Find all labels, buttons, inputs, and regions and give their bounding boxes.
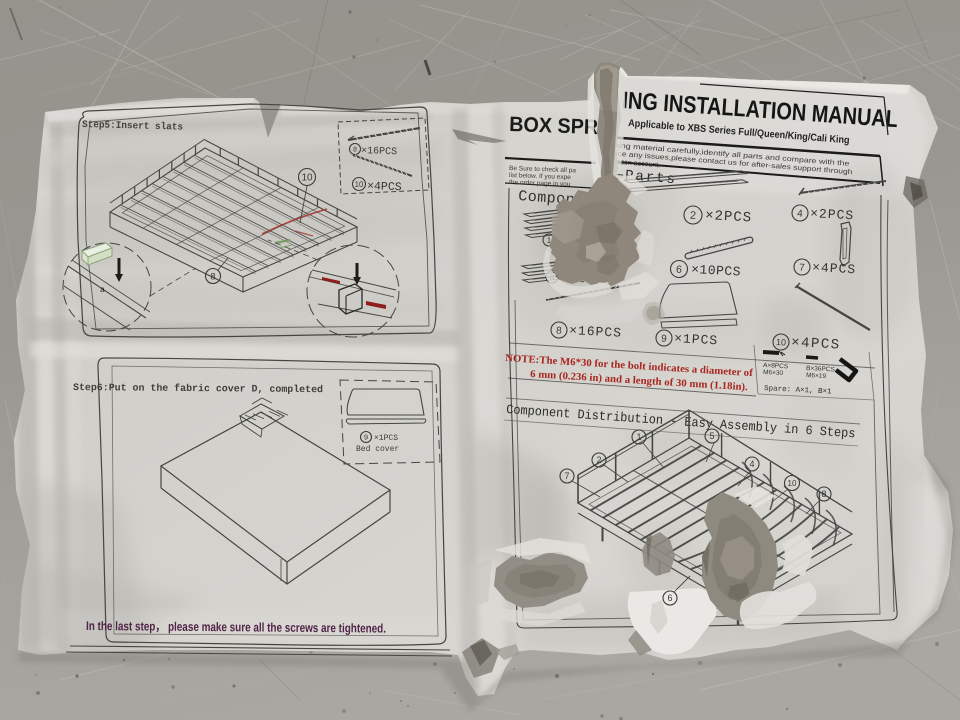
svg-text:M6×30: M6×30 [763,369,784,377]
svg-text:2: 2 [690,210,697,222]
svg-text:5: 5 [709,431,714,441]
svg-text:10: 10 [301,173,313,184]
svg-text:8: 8 [556,325,563,336]
svg-text:×16PCS: ×16PCS [361,146,397,158]
svg-text:4: 4 [797,208,804,219]
svg-text:Bed cover: Bed cover [356,445,399,454]
svg-text:×4PCS: ×4PCS [367,180,402,194]
svg-text:a: a [100,286,105,295]
svg-text:9: 9 [661,333,668,344]
svg-text:×16PCS: ×16PCS [569,323,623,341]
svg-text:6: 6 [676,264,683,276]
svg-text:×4PCS: ×4PCS [791,335,841,354]
svg-text:BOX SPR: BOX SPR [509,113,599,139]
svg-text:Step6:Put on the fabric cover: Step6:Put on the fabric cover D, complet… [73,382,323,396]
svg-text:×1PCS: ×1PCS [674,331,719,348]
svg-text:10: 10 [788,479,797,488]
svg-text:×1PCS: ×1PCS [374,434,398,443]
svg-text:×2PCS: ×2PCS [810,206,855,223]
svg-text:10: 10 [354,180,364,189]
svg-text:In the last step， please make: In the last step， please make sure all t… [86,619,386,636]
svg-text:8: 8 [821,489,826,499]
svg-text:2: 2 [596,455,601,465]
svg-text:10: 10 [776,337,787,348]
svg-text:6: 6 [667,593,672,603]
svg-text:4: 4 [749,459,754,469]
svg-text:7: 7 [799,262,806,273]
svg-text:8: 8 [210,271,215,282]
svg-text:×2PCS: ×2PCS [705,208,753,226]
svg-text:M6×19: M6×19 [806,372,827,380]
svg-text:8: 8 [353,146,357,153]
svg-text:9: 9 [364,433,368,442]
svg-text:×4PCS: ×4PCS [812,260,857,277]
svg-text:7: 7 [564,471,569,481]
svg-text:1: 1 [636,432,641,442]
svg-text:×10PCS: ×10PCS [691,262,742,280]
